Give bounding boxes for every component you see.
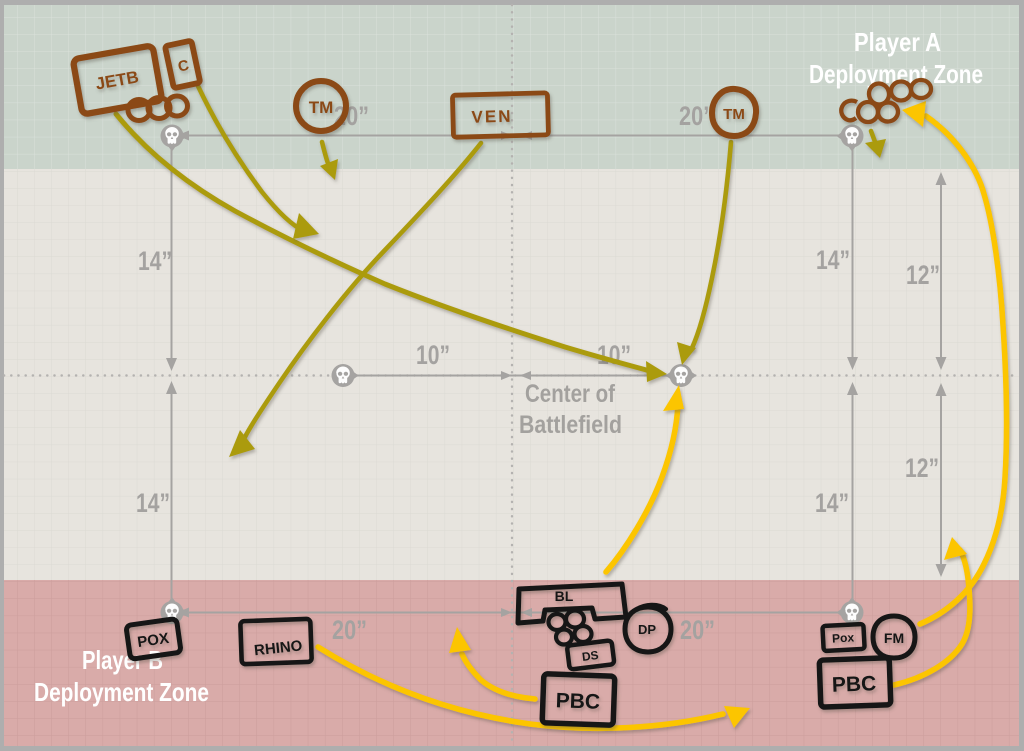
svg-text:DP: DP xyxy=(638,622,656,637)
svg-text:12”: 12” xyxy=(905,453,939,483)
svg-text:Center of: Center of xyxy=(525,380,616,408)
svg-text:14”: 14” xyxy=(136,488,170,518)
svg-text:TM: TM xyxy=(309,98,334,117)
svg-text:14”: 14” xyxy=(816,245,850,275)
svg-text:BL: BL xyxy=(555,588,574,604)
svg-text:PBC: PBC xyxy=(555,689,600,714)
svg-text:VEN: VEN xyxy=(471,107,512,127)
svg-text:20”: 20” xyxy=(680,615,715,645)
svg-text:Player A: Player A xyxy=(854,27,941,57)
svg-text:PBC: PBC xyxy=(832,672,877,697)
svg-text:TM: TM xyxy=(723,106,745,123)
svg-text:10”: 10” xyxy=(416,340,450,370)
svg-text:14”: 14” xyxy=(138,246,172,276)
svg-text:Battlefield: Battlefield xyxy=(519,411,622,439)
svg-text:14”: 14” xyxy=(815,488,849,518)
svg-text:Player B: Player B xyxy=(82,645,163,675)
svg-text:DS: DS xyxy=(581,648,599,664)
svg-text:Deployment Zone: Deployment Zone xyxy=(34,677,209,707)
svg-text:20”: 20” xyxy=(332,615,367,645)
svg-text:20”: 20” xyxy=(679,101,714,131)
svg-text:Pox: Pox xyxy=(832,630,855,645)
svg-text:12”: 12” xyxy=(906,260,940,290)
svg-text:FM: FM xyxy=(884,630,904,646)
